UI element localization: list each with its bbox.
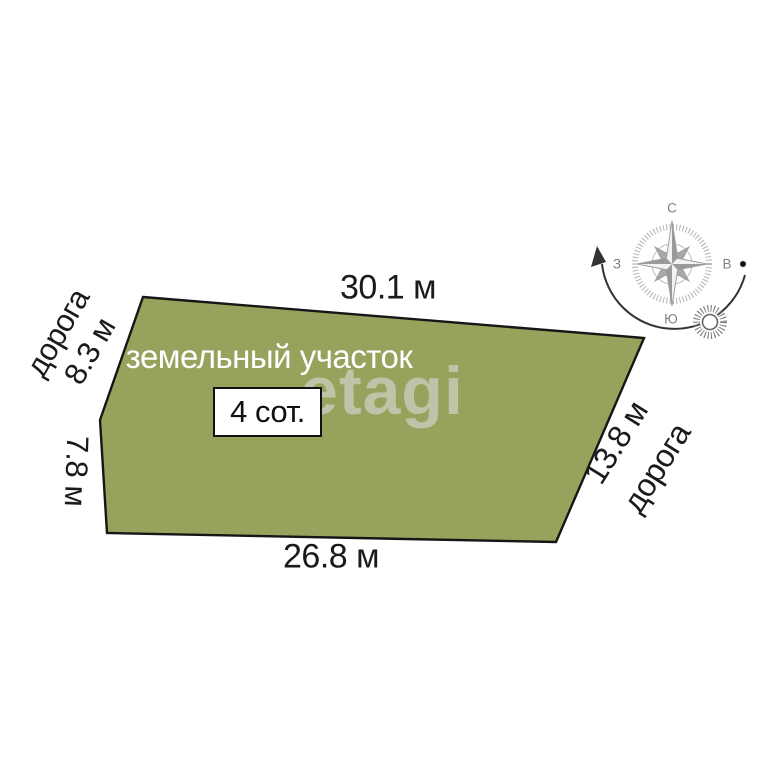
sun-icon [697, 309, 724, 336]
dimension-left-lower-label: 7.8 м [57, 435, 95, 507]
area-badge: 4 сот. [213, 387, 322, 437]
area-badge-label: 4 сот. [230, 394, 305, 430]
dimension-top-label: 30.1 м [340, 269, 436, 308]
compass-dot [740, 261, 746, 267]
plot-name-label: земельный участок [126, 338, 413, 376]
compass-south-label: Ю [664, 312, 678, 327]
arc-arrowhead-icon [591, 246, 606, 267]
compass-west-label: З [613, 257, 621, 272]
compass-east-label: В [722, 257, 731, 272]
compass-north-label: С [667, 201, 677, 216]
site-plan-canvas: С В З Ю etagi 30.1 м дорога 8.3 м 7.8 м … [0, 0, 768, 768]
compass-rose-icon: С В З Ю [591, 201, 746, 336]
dimension-bottom-label: 26.8 м [283, 538, 379, 577]
